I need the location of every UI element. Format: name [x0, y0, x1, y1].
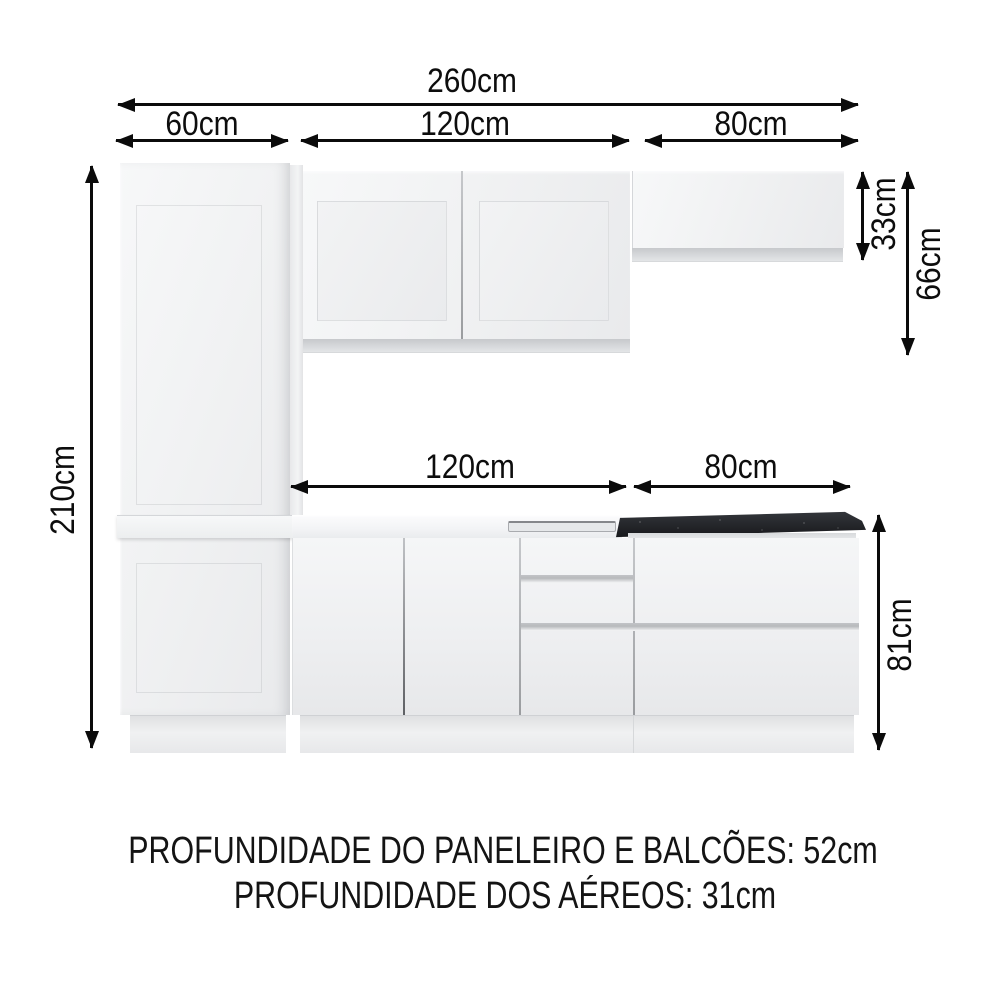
dim-label-upper-middle-width: 120cm	[420, 107, 510, 141]
drawer-groove-long	[521, 623, 859, 631]
upper-middle-left-door-panel	[317, 201, 447, 321]
upper-cabinet-middle	[303, 171, 630, 339]
kitchen-dimension-diagram: 260cm 60cm 120cm 80cm 210cm 33cm 66cm 12…	[0, 0, 1000, 1000]
dim-arrow-total-height	[90, 166, 93, 748]
base-cabinet-run	[292, 538, 859, 715]
drawer-groove-top	[521, 575, 633, 583]
depth-note-wall-cabinets: PROFUNDIDADE DOS AÉREOS: 31cm	[234, 877, 776, 915]
dim-label-counter-height: 81cm	[883, 598, 917, 671]
base-plinth-seam	[633, 716, 634, 753]
dim-arrow-upper-middle-height	[906, 172, 909, 355]
depth-note-pantry-counters: PROFUNDIDADE DO PANELEIRO E BALCÕES: 52c…	[128, 832, 877, 870]
dim-label-upper-right-width: 80cm	[714, 107, 787, 141]
upper-middle-door-gap	[461, 171, 463, 339]
dim-label-counter-middle-width: 120cm	[425, 450, 515, 484]
dim-label-counter-right-width: 80cm	[704, 450, 777, 484]
pantry-plinth	[130, 715, 286, 753]
dim-arrow-upper-right-height	[861, 172, 864, 260]
upper-middle-underside	[303, 339, 630, 353]
dim-label-upper-right-height: 33cm	[867, 177, 901, 250]
dim-arrow-counter-height	[877, 515, 880, 750]
dim-label-pantry-width: 60cm	[165, 107, 238, 141]
upper-right-underside	[632, 248, 843, 262]
base-plinth	[300, 715, 854, 753]
upper-cabinet-right	[632, 171, 844, 248]
base-door-gap	[403, 538, 405, 715]
pantry-upper-door-panel	[136, 205, 262, 505]
corner-filler-panel	[290, 165, 303, 515]
dim-label-total-width: 260cm	[427, 64, 517, 98]
pantry-middle-band	[117, 515, 293, 538]
dim-label-upper-middle-height: 66cm	[912, 227, 946, 300]
pantry-lower-door-panel	[136, 563, 262, 693]
sink-inset	[508, 521, 616, 532]
pantry-cabinet	[120, 163, 290, 715]
upper-middle-right-door-panel	[479, 201, 609, 321]
dim-label-total-height: 210cm	[46, 445, 80, 535]
